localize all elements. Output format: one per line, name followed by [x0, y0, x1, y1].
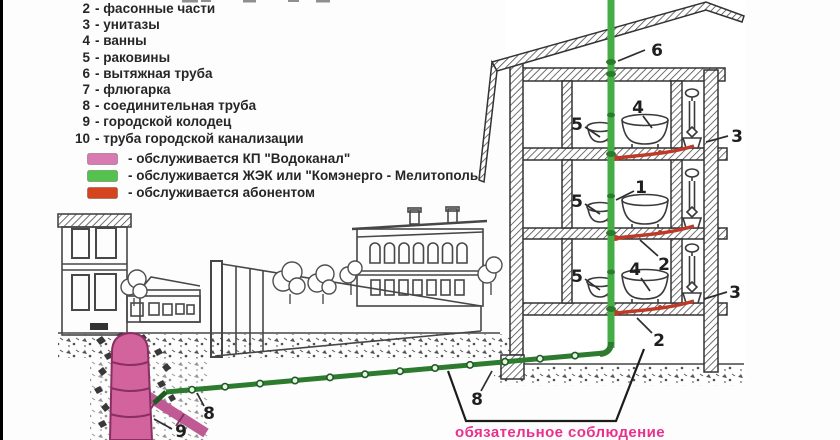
scheme-drawing: 6 5 4 3 5 1 2 5 4 3 2 8 8 9 — [0, 0, 840, 440]
sewage-scheme-diagram: 2- фасонные части 3- унитазы 4- ванны 5-… — [0, 0, 840, 440]
tree — [478, 257, 502, 295]
callout-2-fitting-f2: 2 — [658, 255, 670, 275]
callout-3-toilet-f3: 3 — [729, 283, 741, 303]
callout-4-bath-f3: 4 — [629, 260, 641, 280]
callout-2-fitting-basement: 2 — [653, 331, 665, 351]
callout-4-bath-f1: 4 — [632, 98, 644, 118]
callout-6-vent-pipe: 6 — [651, 41, 663, 61]
callout-9-city-well: 9 — [175, 422, 187, 440]
callout-1-riser: 1 — [635, 178, 647, 198]
tree — [121, 270, 147, 306]
city-well — [110, 333, 152, 440]
mandatory-compliance-note: обязательное соблюдение — [455, 424, 665, 440]
callout-5-sink-f3: 5 — [571, 267, 583, 287]
cutoff-text-remnants — [182, 0, 330, 3]
tree — [273, 262, 305, 304]
lower-windows — [371, 280, 464, 295]
left-house — [58, 214, 131, 335]
callout-8-connecting-right: 8 — [471, 390, 483, 410]
background-building — [352, 207, 487, 306]
tree — [308, 265, 336, 304]
callout-5-sink-f1: 5 — [571, 115, 583, 135]
tree — [340, 261, 362, 295]
callout-3-toilet-f1: 3 — [731, 127, 743, 147]
upper-windows — [370, 243, 467, 263]
callout-8-connecting-left: 8 — [203, 404, 215, 424]
callout-5-sink-f2: 5 — [571, 192, 583, 212]
